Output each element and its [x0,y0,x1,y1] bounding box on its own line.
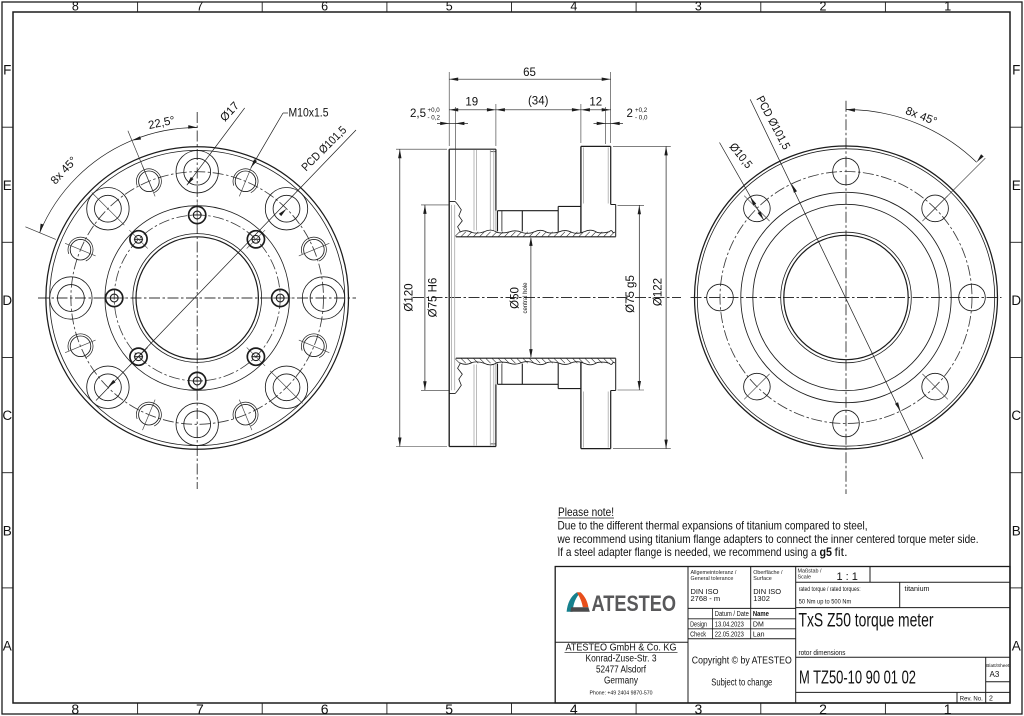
svg-text:Due to the different thermal e: Due to the different thermal expansions … [558,519,868,533]
svg-text:50 Nm up to 500 Nm: 50 Nm up to 500 Nm [799,598,852,605]
svg-text:C: C [2,408,12,423]
svg-text:22.05.2023: 22.05.2023 [715,632,744,639]
svg-text:titanium: titanium [905,586,930,593]
svg-text:TxS Z50 torque meter: TxS Z50 torque meter [799,611,934,632]
svg-text:- 0,0: - 0,0 [635,115,648,122]
svg-text:1 : 1: 1 : 1 [837,571,858,583]
svg-text:g5: g5 [820,545,833,559]
svg-text:5: 5 [446,0,453,14]
svg-text:52477 Alsdorf: 52477 Alsdorf [596,665,646,676]
svg-text:M10x1.5: M10x1.5 [289,107,329,119]
svg-text:7: 7 [196,701,204,716]
svg-text:Copyright © by ATESTEO: Copyright © by ATESTEO [692,655,792,666]
svg-text:7: 7 [196,0,203,14]
svg-text:5: 5 [445,701,453,716]
svg-text:4: 4 [570,0,577,14]
svg-text:Rev. No.: Rev. No. [960,696,983,703]
svg-text:Name: Name [753,611,769,618]
svg-text:2768 - m: 2768 - m [691,594,721,603]
svg-text:(34): (34) [528,96,549,108]
svg-text:Germany: Germany [604,676,638,687]
svg-text:DM: DM [753,621,764,628]
svg-text:65: 65 [523,67,536,79]
svg-text:Ø50: Ø50 [510,287,522,309]
svg-text:E: E [3,178,12,193]
svg-text:2,5: 2,5 [410,108,426,120]
svg-text:Datum / Date: Datum / Date [715,611,749,618]
svg-text:3: 3 [695,0,702,14]
svg-text:Ø75 H6: Ø75 H6 [427,278,439,318]
svg-text:central hole: central hole [523,282,529,314]
svg-text:rated torque / rated torques:: rated torque / rated torques: [799,586,861,593]
svg-text:Lan: Lan [753,632,765,639]
svg-text:ATESTEO GmbH & Co. KG: ATESTEO GmbH & Co. KG [566,642,677,653]
svg-text:A: A [3,639,12,654]
svg-text:F: F [3,63,11,78]
svg-text:D: D [2,293,12,308]
svg-text:F: F [1012,63,1020,78]
svg-text:A: A [1012,639,1021,654]
svg-text:Blatt/Sheet: Blatt/Sheet [986,663,1010,669]
svg-text:2: 2 [989,696,993,703]
svg-text:fit.: fit. [835,545,848,559]
svg-text:2: 2 [627,108,633,120]
svg-text:- 0,2: - 0,2 [428,115,441,122]
svg-text:D: D [1011,293,1021,308]
svg-text:Ø120: Ø120 [403,283,415,311]
svg-text:+0,0: +0,0 [428,107,441,114]
svg-text:Phone: +49 2404 9870-570: Phone: +49 2404 9870-570 [590,690,653,696]
svg-text:13.04.2023: 13.04.2023 [715,621,744,628]
svg-text:B: B [3,523,12,538]
svg-text:Konrad-Zuse-Str. 3: Konrad-Zuse-Str. 3 [586,654,657,665]
svg-text:19: 19 [465,97,478,109]
svg-text:Ø122: Ø122 [653,278,665,306]
svg-text:Surface: Surface [753,576,772,582]
svg-text:ATESTEO: ATESTEO [592,591,677,616]
svg-text:6: 6 [321,0,328,14]
svg-text:6: 6 [321,701,329,716]
svg-text:8: 8 [72,0,79,14]
svg-text:8: 8 [71,701,79,716]
svg-text:1302: 1302 [753,594,770,603]
svg-text:If a steel adapter flange is n: If a steel adapter flange is needed, we … [558,545,817,559]
svg-text:B: B [1012,523,1021,538]
svg-text:Scale: Scale [798,575,812,581]
svg-text:Check: Check [690,632,706,639]
svg-text:E: E [1012,178,1021,193]
svg-text:General tolerance: General tolerance [691,576,734,582]
svg-text:C: C [1011,408,1021,423]
svg-text:2: 2 [820,0,827,14]
svg-text:Design: Design [690,621,707,628]
svg-text:rotor dimensions: rotor dimensions [799,648,846,657]
svg-text:Please note!: Please note! [558,505,614,519]
svg-text:12: 12 [589,97,602,109]
svg-text:+0,2: +0,2 [635,107,648,114]
svg-text:A3: A3 [990,670,1000,679]
svg-text:M TZ50-10 90 01 02: M TZ50-10 90 01 02 [799,667,916,688]
svg-text:we recommend using titanium fl: we recommend using titanium flange adapt… [557,532,979,546]
svg-text:Subject to change: Subject to change [711,677,772,688]
svg-text:1: 1 [944,0,951,14]
svg-text:Ø75 g5: Ø75 g5 [625,275,637,313]
